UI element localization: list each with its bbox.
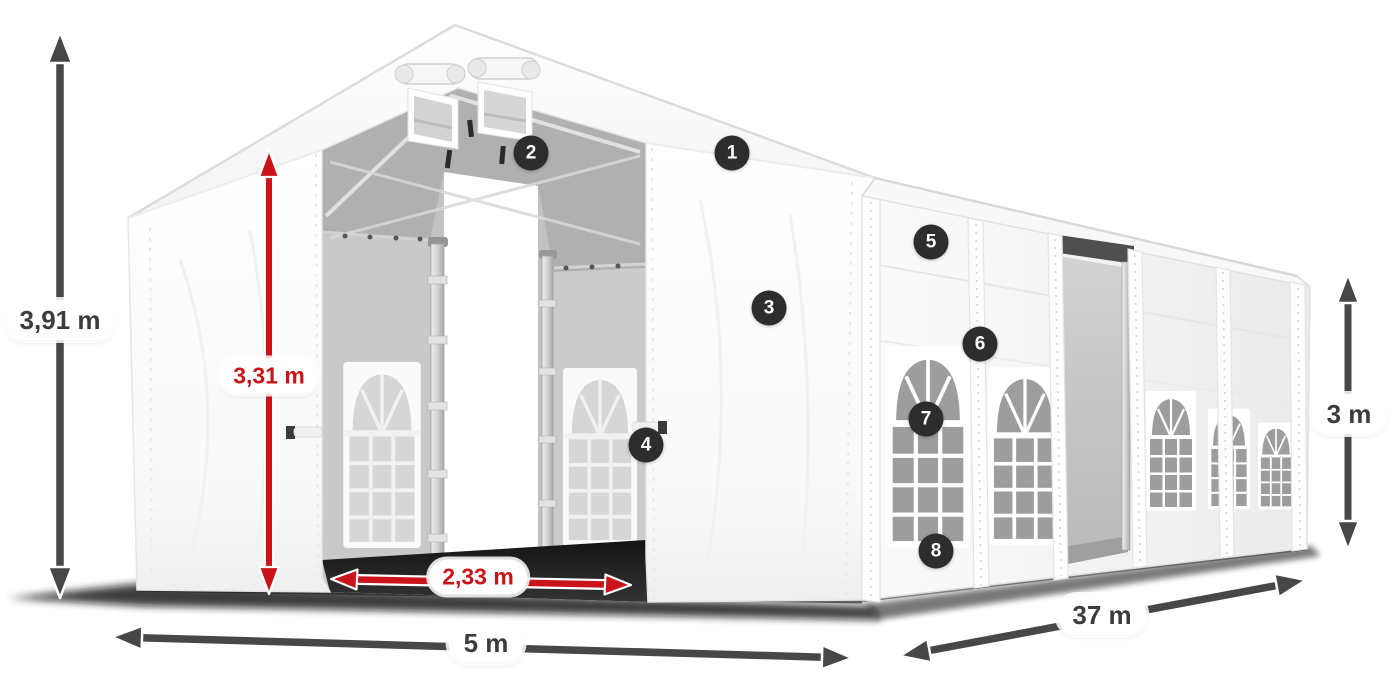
side-window [1146,391,1196,511]
dimension-label-total-height: 3,91 m [5,300,116,340]
dimension-label-entrance-width: 2,33 m [429,560,527,595]
interior-window [563,368,637,546]
tent-illustration [0,0,1400,700]
through-opening [444,172,538,566]
part-badge-1[interactable]: 1 [715,136,750,171]
roof-vent-right [468,58,540,141]
part-badge-5[interactable]: 5 [914,225,949,260]
entrance-interior [315,80,655,610]
dimension-label-front-width: 5 m [449,623,524,663]
tent-product-diagram: 3,91 m 3,31 m 2,33 m 5 m 37 m 3 m 1 2 3 … [0,0,1400,700]
interior-window [343,362,421,548]
part-badge-8[interactable]: 8 [919,534,954,569]
dimension-label-side-height: 3 m [1312,394,1387,434]
dimension-label-entrance-height: 3,31 m [220,359,318,394]
part-badge-3[interactable]: 3 [752,291,787,326]
side-window [886,346,970,548]
part-badge-7[interactable]: 7 [909,402,944,437]
door-handle [286,426,322,439]
side-window [1258,423,1294,509]
part-badge-6[interactable]: 6 [963,327,998,362]
part-badge-4[interactable]: 4 [629,428,664,463]
dimension-label-length: 37 m [1057,595,1146,635]
part-badge-2[interactable]: 2 [514,136,549,171]
